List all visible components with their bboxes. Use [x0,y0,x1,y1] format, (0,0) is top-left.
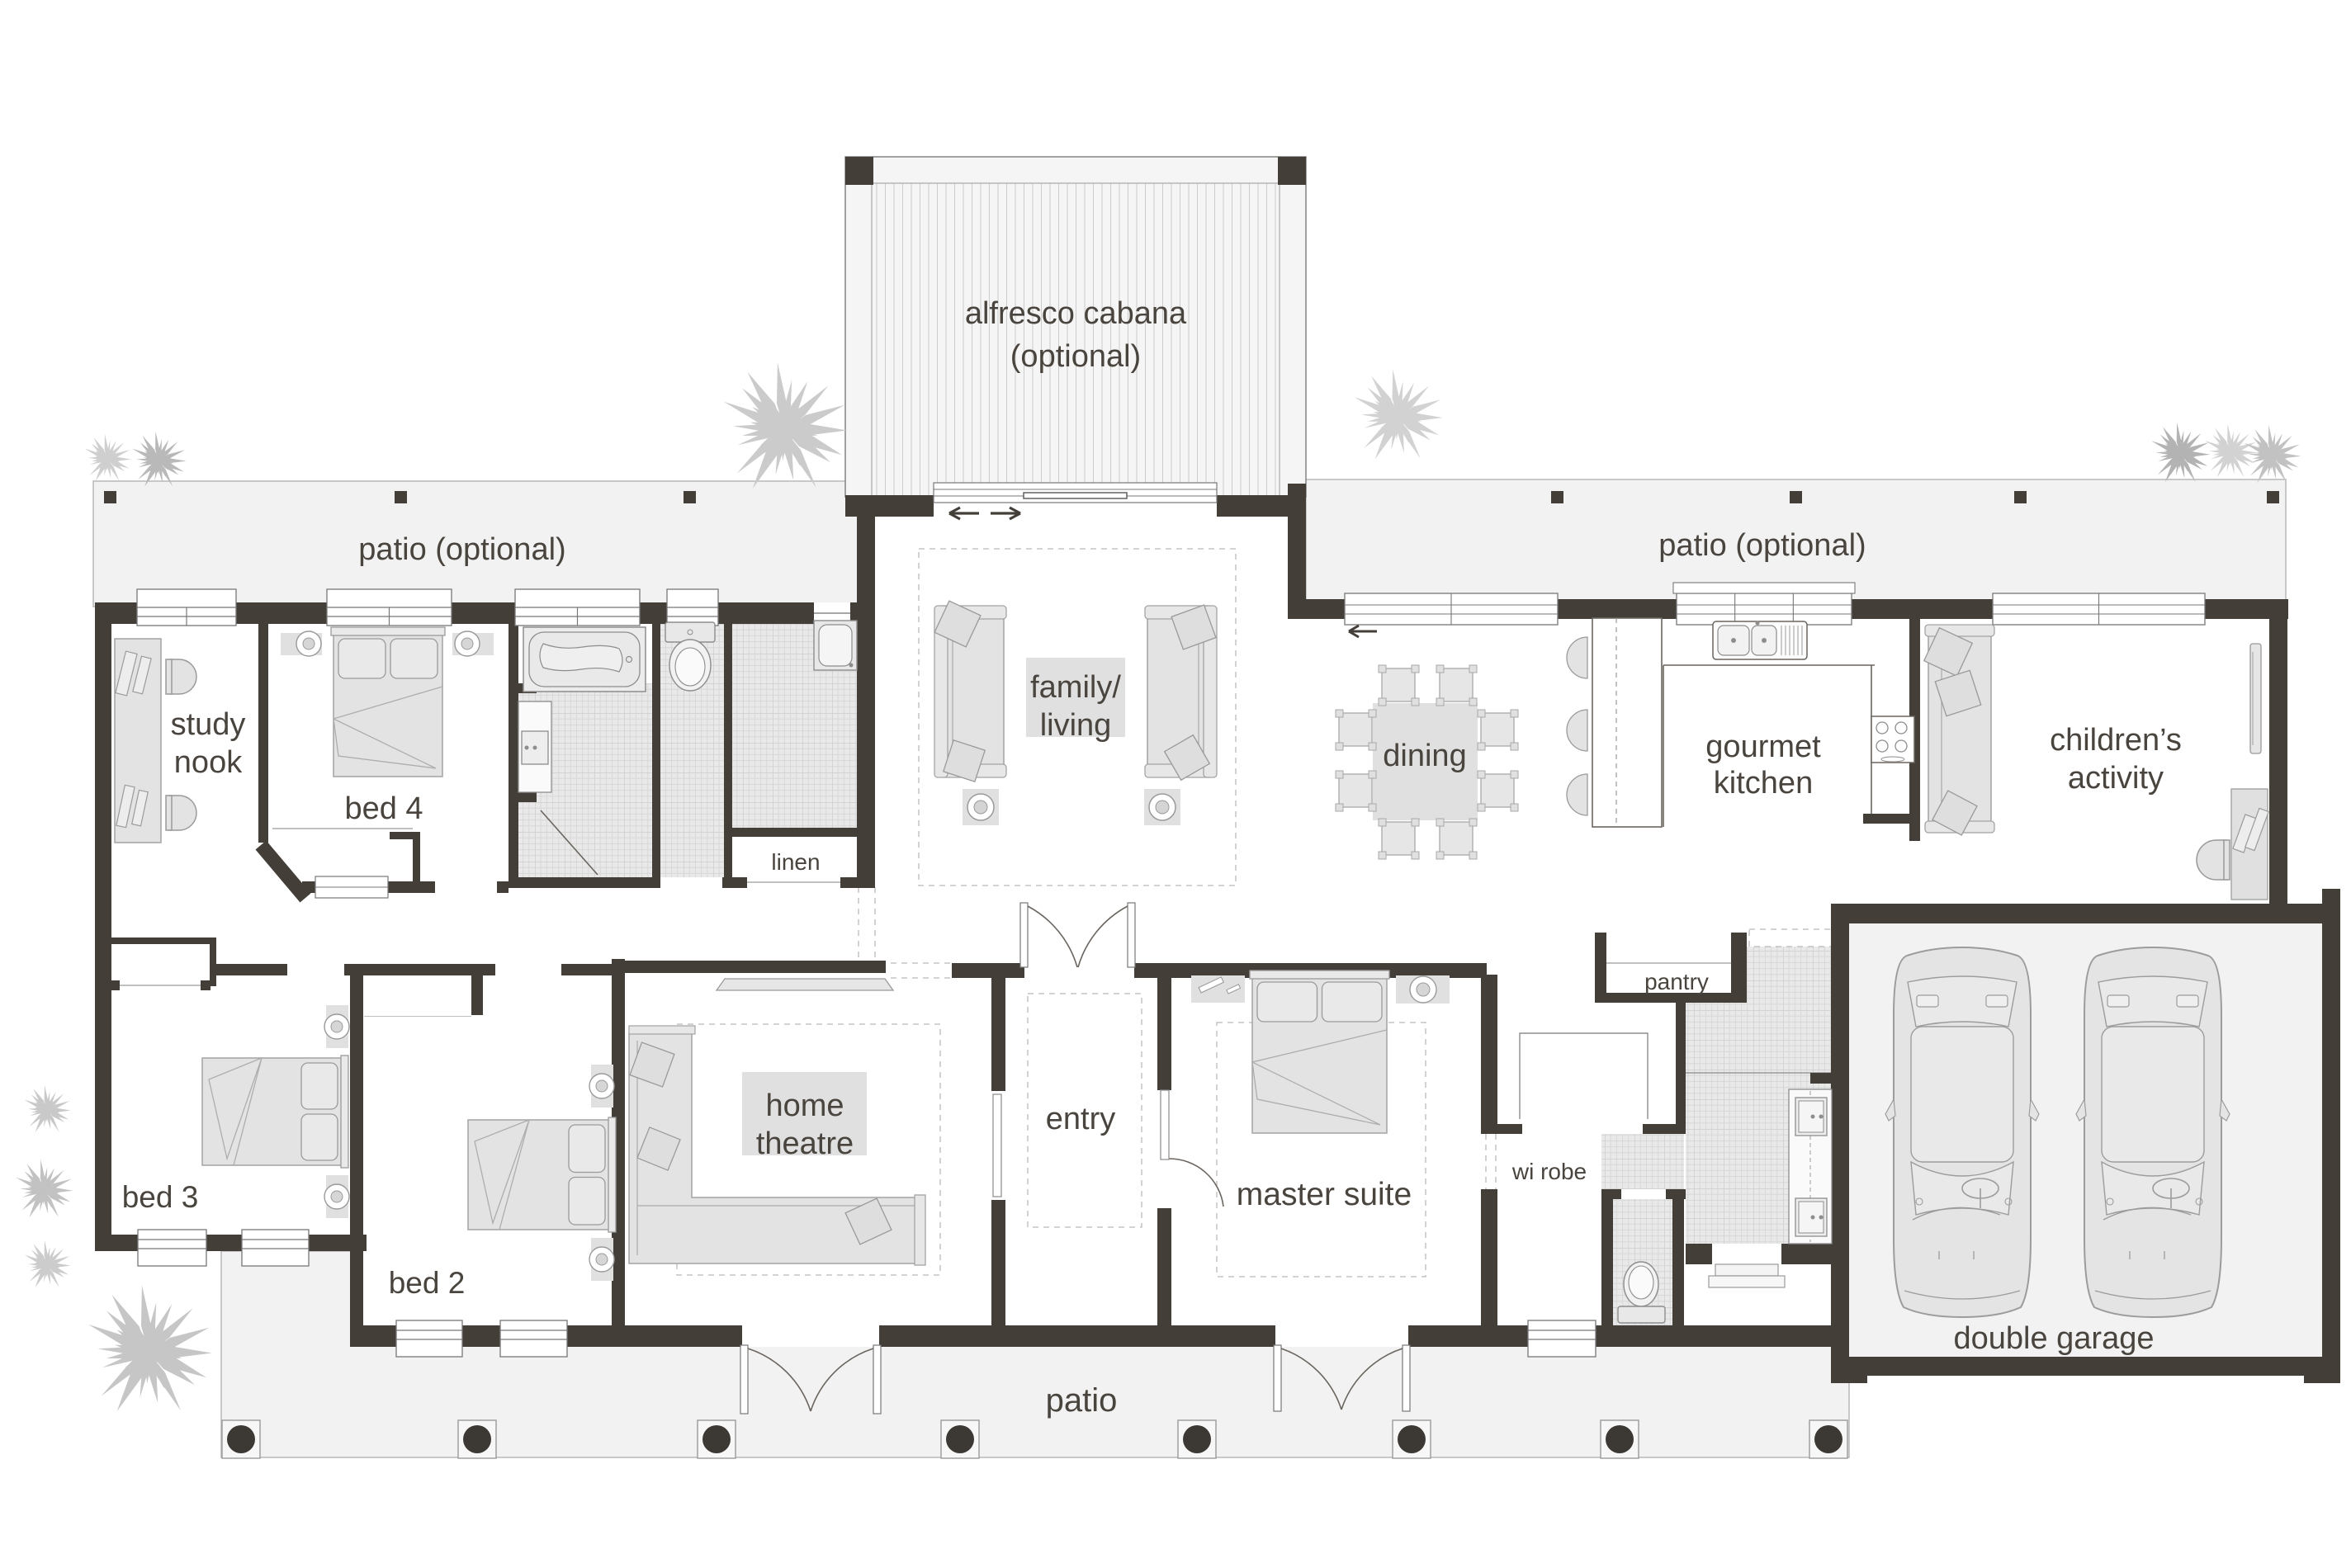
svg-text:living: living [1040,708,1112,743]
svg-text:study: study [171,707,246,742]
svg-text:children’s: children’s [2050,723,2182,758]
svg-text:bed 4: bed 4 [344,791,423,826]
svg-text:nook: nook [174,745,243,780]
svg-text:home: home [765,1089,844,1123]
svg-text:patio (optional): patio (optional) [1658,528,1866,563]
svg-text:activity: activity [2068,761,2164,796]
svg-text:alfresco cabana: alfresco cabana [965,296,1187,331]
svg-text:bed 2: bed 2 [389,1266,466,1300]
svg-text:entry: entry [1046,1102,1115,1136]
svg-text:gourmet: gourmet [1705,730,1821,764]
svg-text:master suite: master suite [1237,1177,1412,1212]
svg-text:bed 3: bed 3 [122,1180,199,1214]
svg-text:patio: patio [1046,1382,1118,1419]
svg-text:linen: linen [771,849,820,875]
svg-text:theatre: theatre [756,1126,854,1161]
svg-text:dining: dining [1383,739,1466,773]
svg-text:patio (optional): patio (optional) [358,532,565,567]
svg-text:family/: family/ [1030,670,1121,705]
svg-text:wi robe: wi robe [1511,1159,1587,1184]
svg-text:kitchen: kitchen [1714,766,1813,801]
svg-text:pantry: pantry [1644,969,1709,994]
svg-text:(optional): (optional) [1010,339,1141,374]
svg-text:double garage: double garage [1954,1321,2155,1356]
